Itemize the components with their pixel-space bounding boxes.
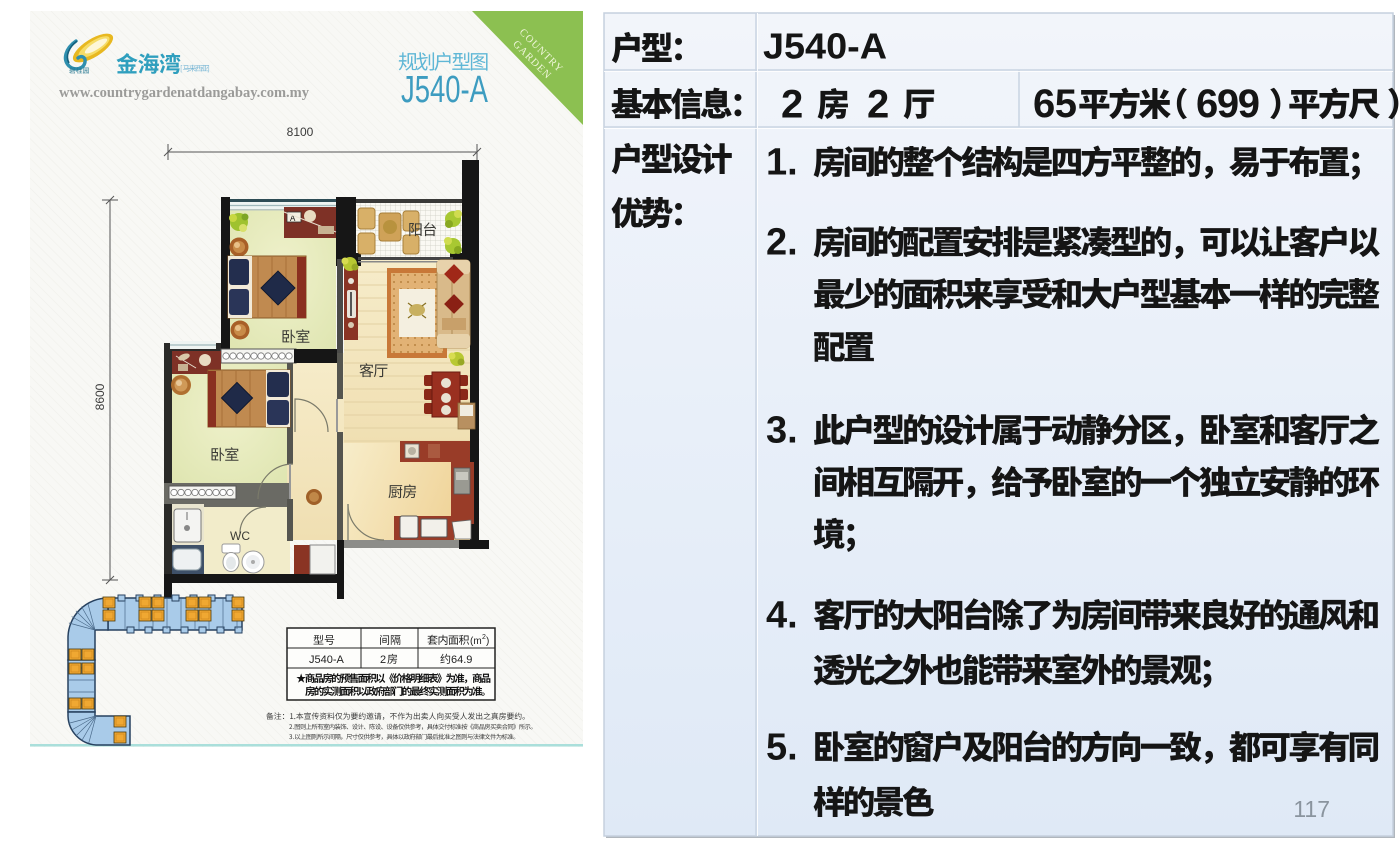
svg-text:1.: 1. — [766, 141, 798, 183]
svg-text:64.9: 64.9 — [451, 654, 472, 666]
svg-text:www.countrygardenatdangabay.co: www.countrygardenatdangabay.com.my — [59, 85, 309, 101]
svg-text:WC: WC — [230, 529, 250, 543]
svg-text:(m: (m — [470, 636, 482, 647]
svg-text:J540-A: J540-A — [309, 654, 345, 666]
svg-text:65: 65 — [1033, 82, 1077, 126]
svg-text:117: 117 — [1293, 796, 1330, 822]
svg-text:): ) — [486, 636, 489, 647]
svg-text:8600: 8600 — [93, 383, 107, 410]
svg-text:2: 2 — [380, 654, 386, 666]
svg-text:699: 699 — [1196, 82, 1260, 126]
svg-text:2: 2 — [781, 83, 803, 127]
svg-text:2.: 2. — [766, 221, 798, 263]
svg-text:J540-A: J540-A — [763, 26, 887, 67]
svg-text:J540-A: J540-A — [401, 69, 488, 111]
svg-text:3.: 3. — [766, 409, 798, 451]
svg-text:5.: 5. — [766, 726, 798, 768]
svg-text:2: 2 — [867, 83, 889, 127]
svg-text:4.: 4. — [766, 594, 798, 636]
svg-text:8100: 8100 — [287, 125, 314, 139]
